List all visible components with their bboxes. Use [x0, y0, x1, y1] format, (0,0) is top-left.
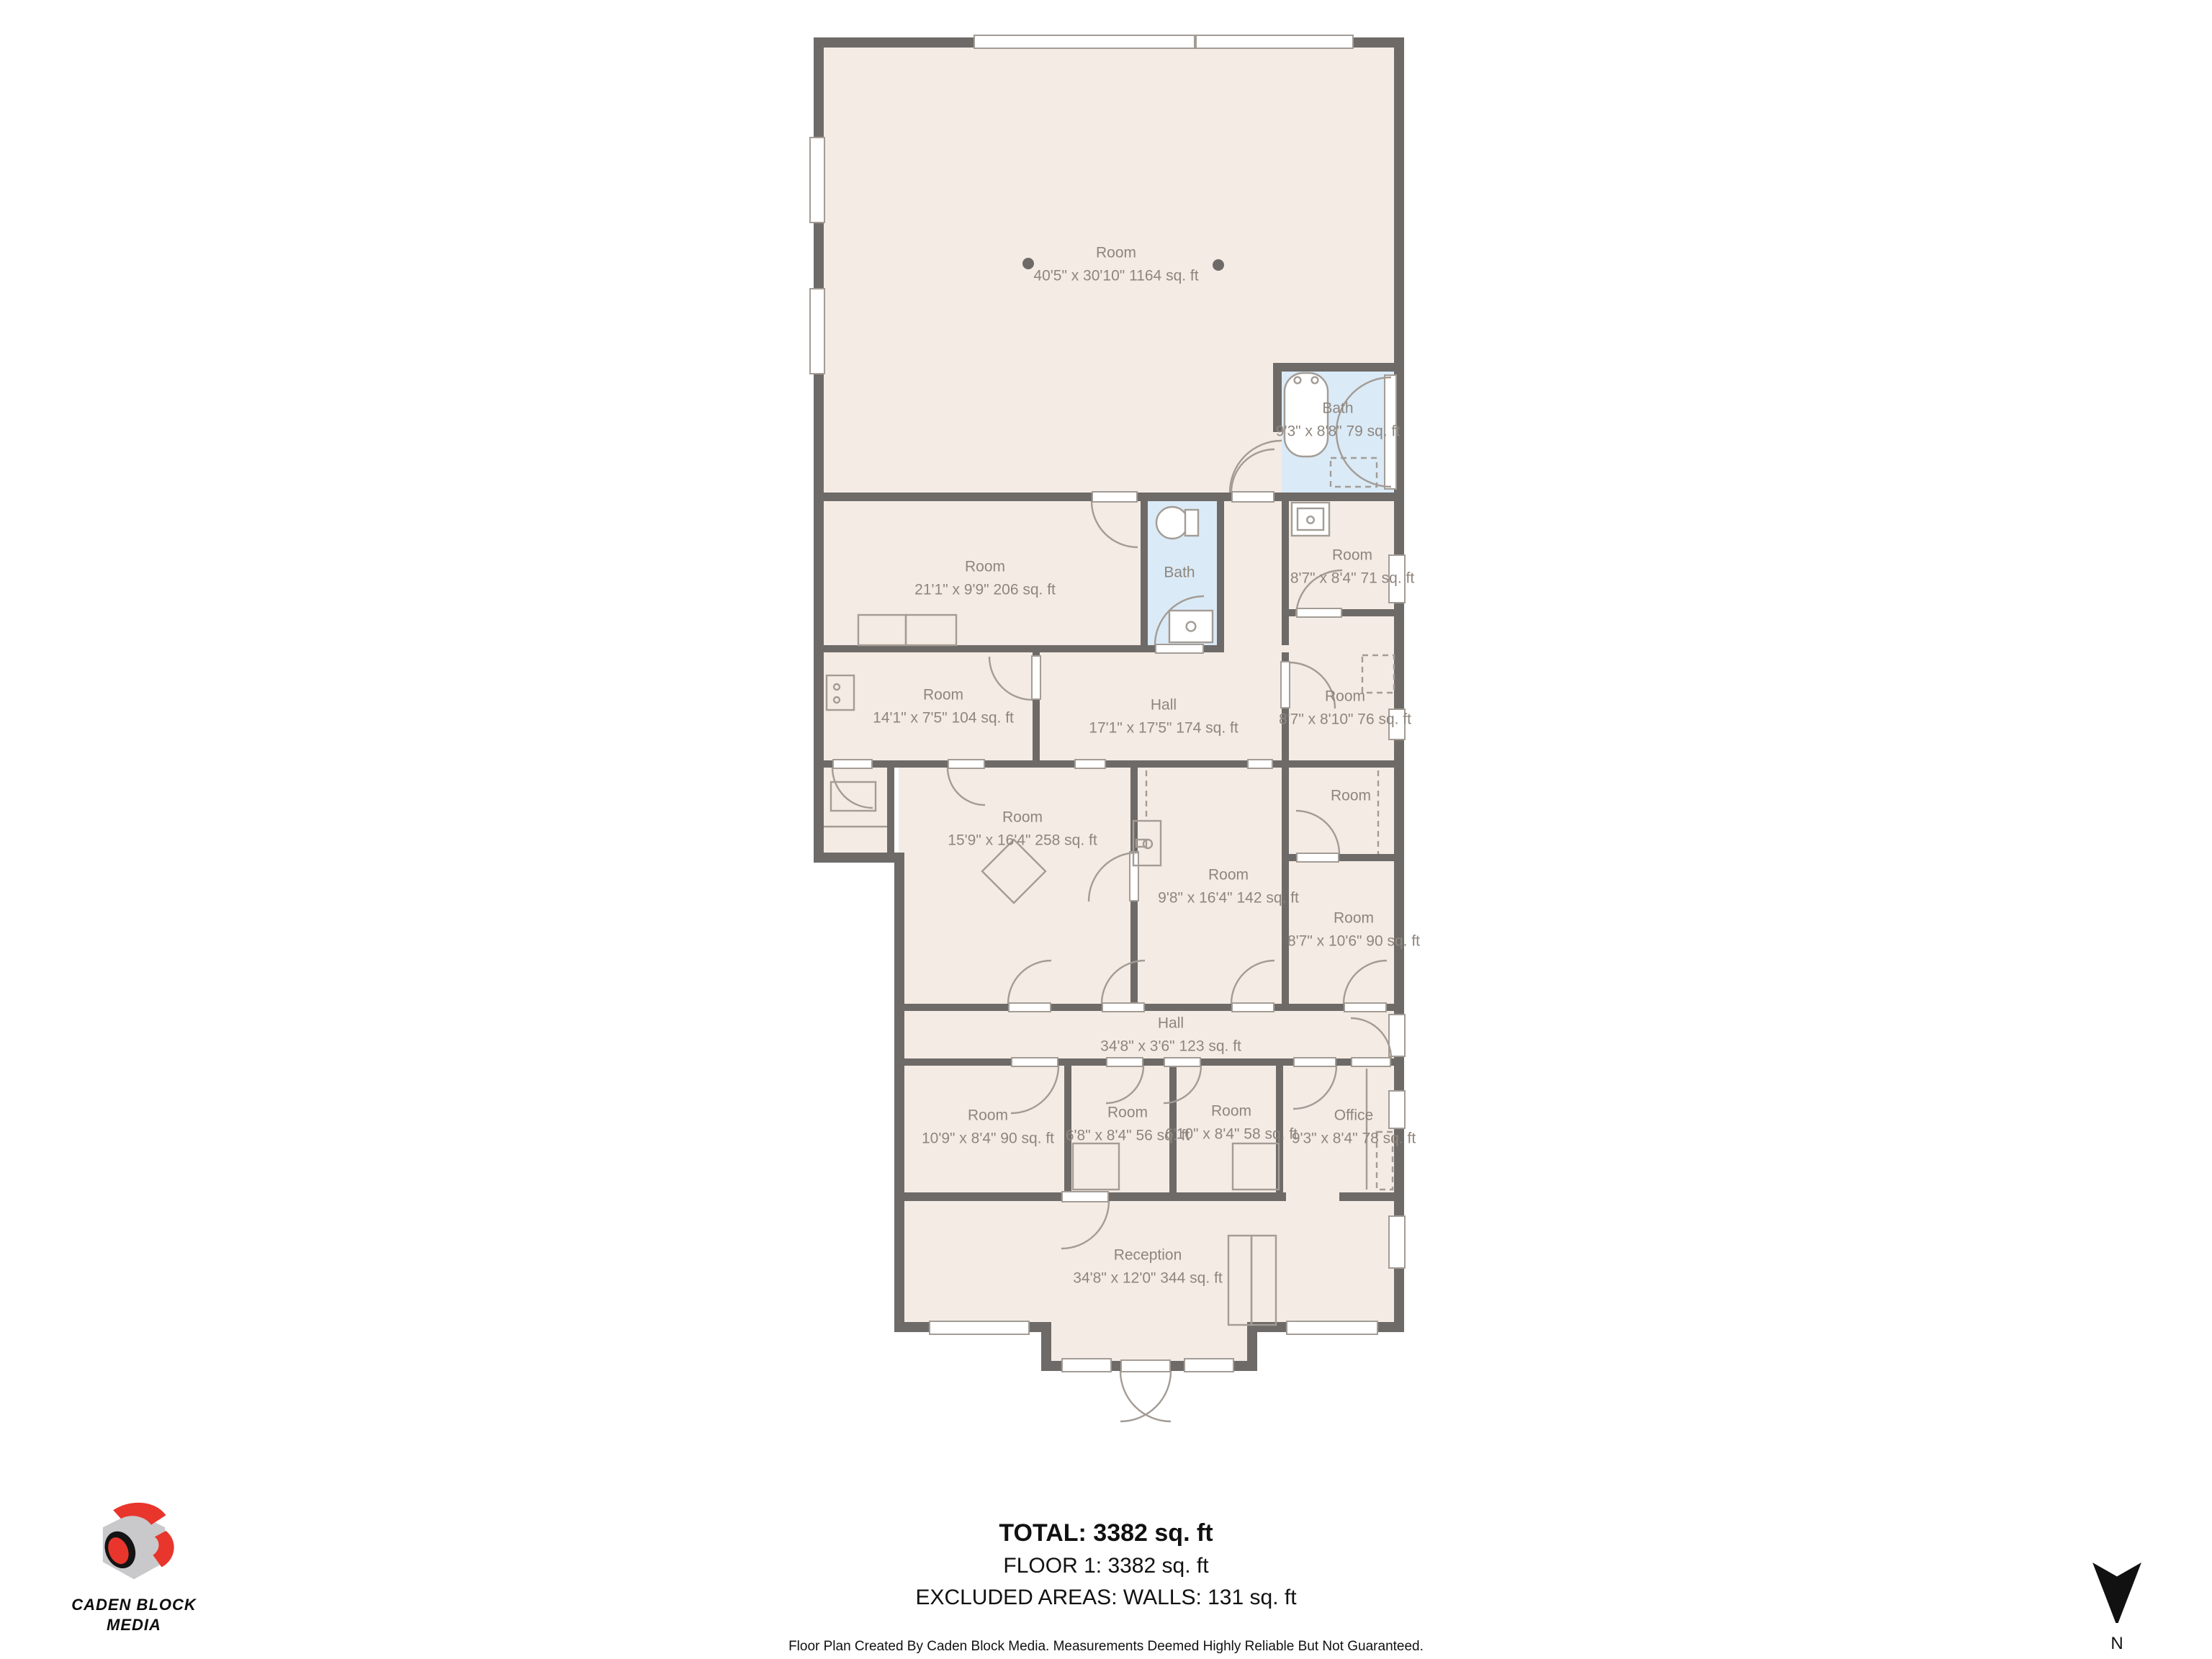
door-leaf [1231, 1002, 1274, 1012]
room-label-76: Room8'7" x 8'10" 76 sq. ft [1279, 685, 1411, 732]
logo-text-line2: MEDIA [40, 1617, 228, 1637]
room-label-98: Room9'8" x 16'4" 142 sq. ft [1158, 863, 1299, 910]
window [809, 137, 825, 223]
room-label-610: Room6'10" x 8'4" 58 sq. ft [1165, 1100, 1298, 1146]
front-door-arc [1120, 1371, 1171, 1421]
window [1184, 1358, 1234, 1372]
room-floor-closet [818, 766, 893, 857]
door-leaf [1061, 1191, 1109, 1202]
room-label-159: Room15'9" x 16'4" 258 sq. ft [948, 806, 1097, 853]
door-leaf [1388, 1014, 1406, 1057]
door-leaf [1031, 655, 1041, 700]
wall [1289, 760, 1404, 768]
door-leaf [1296, 608, 1342, 618]
front-door-arc [1120, 1371, 1171, 1421]
door-leaf [1231, 491, 1274, 503]
door-leaf [948, 759, 985, 769]
room-label-bath-small: Bath [1164, 562, 1195, 585]
wall [1217, 501, 1224, 645]
window [974, 35, 1195, 49]
wall [894, 853, 904, 1332]
north-arrow-icon [2092, 1563, 2141, 1623]
logo-cube-icon [82, 1498, 186, 1590]
total-area-text: TOTAL: 3382 sq. ft [0, 1519, 2212, 1548]
floor-area-text: FLOOR 1: 3382 sq. ft [0, 1554, 2212, 1578]
north-indicator: N [2085, 1563, 2149, 1653]
room-label-90b: Room8'7" x 10'6" 90 sq. ft [1287, 907, 1420, 953]
room-label-ne: Room [1331, 785, 1371, 809]
window [1061, 1358, 1112, 1372]
door-opening [1286, 1192, 1339, 1201]
door-leaf [1344, 1002, 1387, 1012]
door-leaf [1247, 759, 1273, 769]
door-leaf [1074, 759, 1106, 769]
door-leaf [1296, 853, 1339, 863]
room-label-large: Room40'5" x 30'10" 1164 sq. ft [1033, 241, 1198, 288]
door-leaf [1102, 1002, 1145, 1012]
window [1195, 35, 1354, 49]
door-opening [1224, 645, 1289, 652]
window [929, 1321, 1030, 1335]
room-label-hall-upper: Hall17'1" x 17'5" 174 sq. ft [1089, 693, 1238, 740]
room-label-office: Office9'3" x 8'4" 78 sq. ft [1292, 1104, 1416, 1151]
room-label-hall-lower: Hall34'8" x 3'6" 123 sq. ft [1100, 1012, 1241, 1058]
room-label-bath-top: Bath9'3" x 8'8" 79 sq. ft [1276, 397, 1400, 444]
room-label-71: Room8'7" x 8'4" 71 sq. ft [1290, 544, 1414, 590]
window [1286, 1321, 1378, 1335]
door-leaf [1011, 1057, 1058, 1067]
window [809, 288, 825, 374]
excluded-area-text: EXCLUDED AREAS: WALLS: 131 sq. ft [0, 1586, 2212, 1610]
room-label-141: Room14'1" x 7'5" 104 sq. ft [873, 683, 1014, 730]
room-floor-row4 [899, 766, 1400, 1010]
north-label: N [2085, 1633, 2149, 1653]
wall [1273, 363, 1404, 372]
door-leaf [1351, 1057, 1391, 1067]
door-leaf [1129, 851, 1139, 902]
wall [894, 1004, 1404, 1011]
disclaimer-text: Floor Plan Created By Caden Block Media.… [0, 1639, 2212, 1655]
floor-plan-page: Room40'5" x 30'10" 1164 sq. ft Bath9'3" … [0, 0, 2212, 1659]
door-leaf [1293, 1057, 1336, 1067]
room-label-reception: Reception34'8" x 12'0" 344 sq. ft [1073, 1244, 1222, 1290]
room-label-109: Room10'9" x 8'4" 90 sq. ft [922, 1104, 1054, 1151]
wall [887, 768, 894, 860]
door-leaf [1092, 491, 1138, 503]
logo-text-line1: CADEN BLOCK [40, 1597, 228, 1617]
window [1388, 1215, 1406, 1269]
wall [1141, 501, 1148, 645]
door-leaf [1008, 1002, 1051, 1012]
door-leaf [1155, 644, 1204, 654]
company-logo: CADEN BLOCK MEDIA [40, 1498, 228, 1637]
wall [814, 760, 1289, 768]
door-leaf [832, 759, 873, 769]
room-label-211: Room21'1" x 9'9" 206 sq. ft [914, 555, 1056, 602]
front-door-leaf [1120, 1359, 1171, 1372]
